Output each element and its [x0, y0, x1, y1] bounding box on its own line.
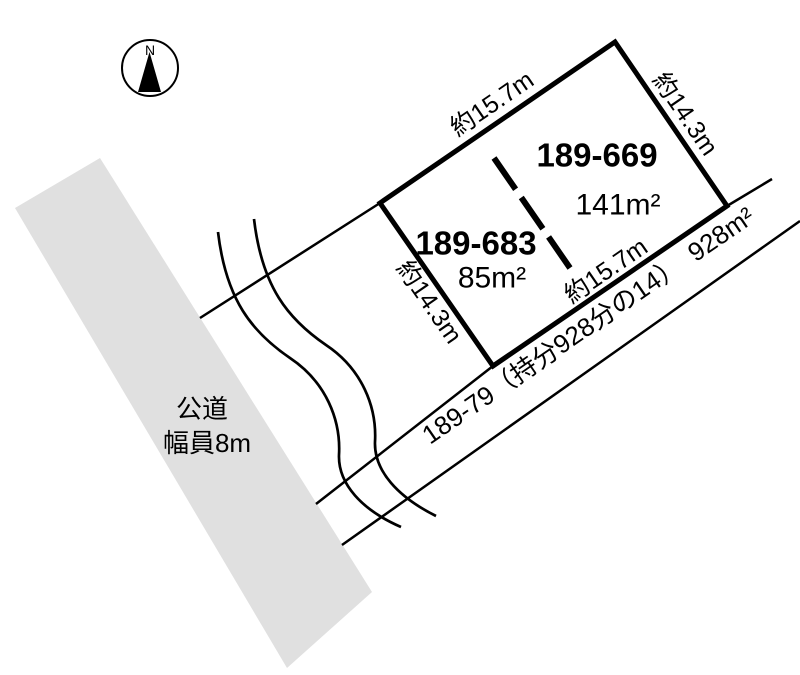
road-upper-line-left	[316, 366, 493, 504]
public-road-name: 公道	[176, 394, 228, 424]
parcel-669-area: 141m²	[575, 189, 660, 222]
parcel-683-area: 85m²	[458, 262, 526, 295]
public-road-width-label: 幅員8m	[163, 428, 251, 458]
parcel-669-id: 189-669	[536, 137, 657, 174]
northwest-boundary-line	[200, 203, 380, 318]
land-plot-diagram: 公道 幅員8m N 約15.7m 約14.3m 約14.3m 約15.7m 18…	[0, 0, 800, 675]
parcel-683-id: 189-683	[415, 225, 536, 262]
compass-needle-icon	[138, 52, 161, 92]
north-compass: N	[122, 40, 178, 96]
road-upper-line-right	[727, 179, 772, 206]
